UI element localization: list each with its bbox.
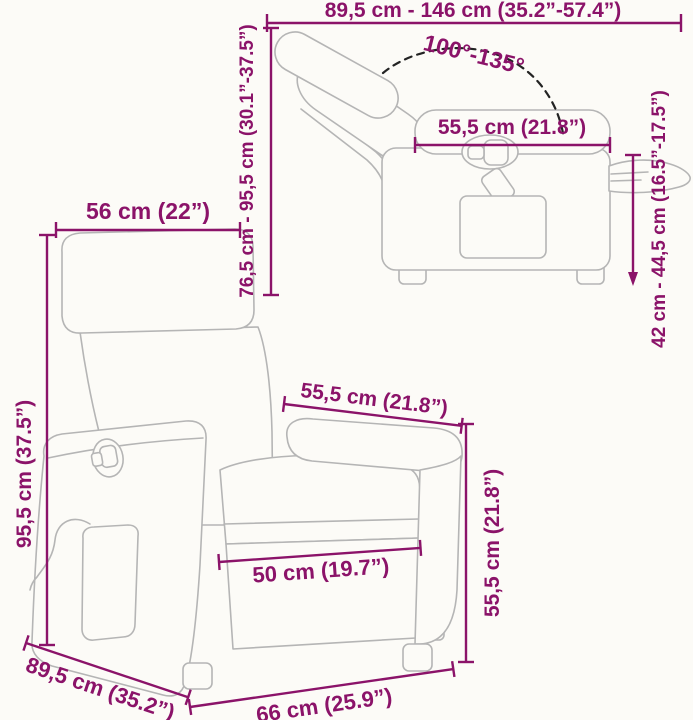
upright-headrest (62, 229, 254, 333)
upright-right-side-panel (415, 456, 461, 644)
recliner-dimension-diagram: 89,5 cm - 146 cm (35.2”-57.4”) 100°-135°… (0, 0, 693, 720)
dim-recline-angle-label: 100°-135° (421, 29, 527, 79)
dim-recline-angle: 100°-135° (421, 29, 527, 79)
upright-foot-front-right (403, 644, 432, 671)
dim-armrest-depth-label: 55,5 cm (21.8”) (299, 379, 449, 420)
dim-footrest-height: 42 cm - 44,5 cm (16.5”-17.5”) (625, 90, 670, 348)
dim-footrest-height-label: 42 cm - 44,5 cm (16.5”-17.5”) (649, 90, 670, 348)
dim-armrest-height: 55,5 cm (21.8”) (458, 424, 504, 662)
dim-total-length-label: 89,5 cm - 146 cm (35.2”-57.4”) (325, 0, 622, 22)
dim-backrest-width-label: 56 cm (22”) (86, 198, 210, 224)
dim-total-height-label: 95,5 cm (37.5”) (13, 400, 36, 548)
reclined-recline-knob-tab (468, 146, 484, 159)
dim-height-range-label: 76,5 cm - 95,5 cm (30.1”-37.5”) (237, 24, 258, 298)
reclined-recline-knob-dial (484, 140, 508, 165)
reclined-side-pocket (460, 196, 546, 258)
upright-foot-front-left (183, 663, 212, 689)
upright-seat-cushion (220, 455, 420, 544)
upright-side-pocket (82, 525, 138, 640)
dimension-diagram-canvas: 89,5 cm - 146 cm (35.2”-57.4”) 100°-135°… (0, 0, 693, 720)
dim-total-length: 89,5 cm - 146 cm (35.2”-57.4”) (267, 0, 681, 32)
dim-height-range: 76,5 cm - 95,5 cm (30.1”-37.5”) (237, 24, 279, 298)
upright-chair-drawing (30, 229, 462, 696)
dim-armrest-height-label: 55,5 cm (21.8”) (481, 469, 504, 617)
dim-armrest-length-label: 55,5 cm (21.8”) (438, 116, 586, 139)
